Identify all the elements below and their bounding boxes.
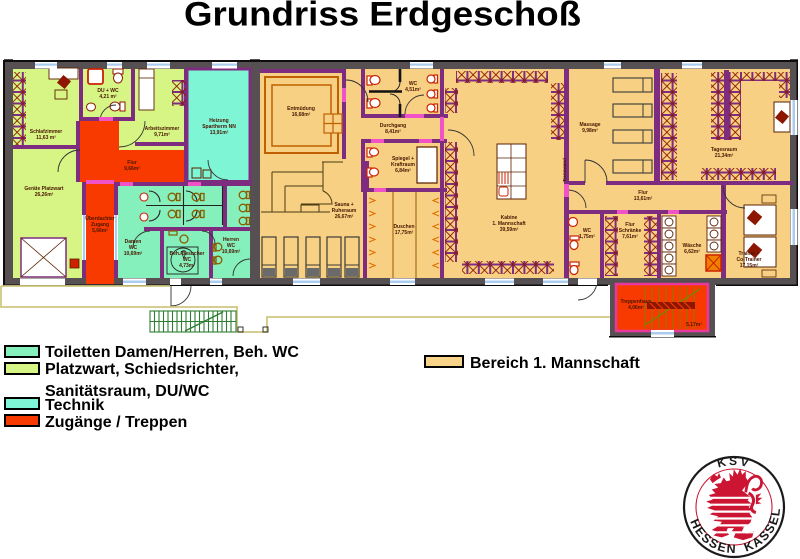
- svg-text:Toiletten Damen/Herren, Beh. W: Toiletten Damen/Herren, Beh. WC: [45, 344, 299, 361]
- svg-text:4,51m²: 4,51m²: [405, 87, 421, 93]
- svg-text:Technik: Technik: [45, 397, 104, 414]
- svg-text:Überdachter: Überdachter: [85, 215, 115, 222]
- svg-text:7,61m²: 7,61m²: [622, 234, 638, 240]
- svg-text:6,62m²: 6,62m²: [684, 249, 700, 255]
- svg-text:9,66m²: 9,66m²: [124, 166, 140, 172]
- svg-text:17,75m²: 17,75m²: [395, 230, 414, 236]
- svg-text:1,75m²: 1,75m²: [579, 234, 595, 240]
- svg-text:13,61m²: 13,61m²: [634, 196, 653, 202]
- svg-text:21,34m²: 21,34m²: [715, 153, 734, 159]
- svg-text:8,41m²: 8,41m²: [385, 129, 401, 135]
- svg-text:9,71m²: 9,71m²: [154, 132, 170, 138]
- svg-text:5,17m²: 5,17m²: [686, 322, 702, 328]
- svg-text:4,06m²: 4,06m²: [628, 305, 644, 311]
- svg-text:Bereich 1. Mannschaft: Bereich 1. Mannschaft: [470, 355, 641, 372]
- svg-text:11,63 m²: 11,63 m²: [36, 135, 56, 141]
- svg-text:4,21 m²: 4,21 m²: [99, 94, 117, 100]
- svg-text:10,69m²: 10,69m²: [222, 249, 241, 255]
- svg-text:10,69m²: 10,69m²: [124, 251, 143, 257]
- svg-text:4,73m²: 4,73m²: [179, 263, 195, 269]
- svg-text:Grundriss Erdgeschoß: Grundriss Erdgeschoß: [184, 0, 581, 34]
- svg-text:5,66m²: 5,66m²: [92, 228, 108, 234]
- svg-text:16,68m²: 16,68m²: [292, 112, 311, 118]
- svg-text:Platzwart, Schiedsrichter,: Platzwart, Schiedsrichter,: [45, 361, 239, 378]
- svg-text:Zugänge / Treppen: Zugänge / Treppen: [45, 414, 187, 431]
- svg-text:Trennwand: Trennwand: [562, 158, 567, 182]
- svg-text:26,26m²: 26,26m²: [35, 192, 54, 198]
- svg-text:26,67m²: 26,67m²: [335, 214, 354, 220]
- svg-text:9,98m²: 9,98m²: [582, 128, 598, 134]
- svg-text:13,91m²: 13,91m²: [210, 130, 229, 136]
- svg-text:17,15m²: 17,15m²: [740, 263, 759, 269]
- svg-text:39,59m²: 39,59m²: [500, 227, 519, 233]
- svg-text:6,84m²: 6,84m²: [395, 168, 411, 174]
